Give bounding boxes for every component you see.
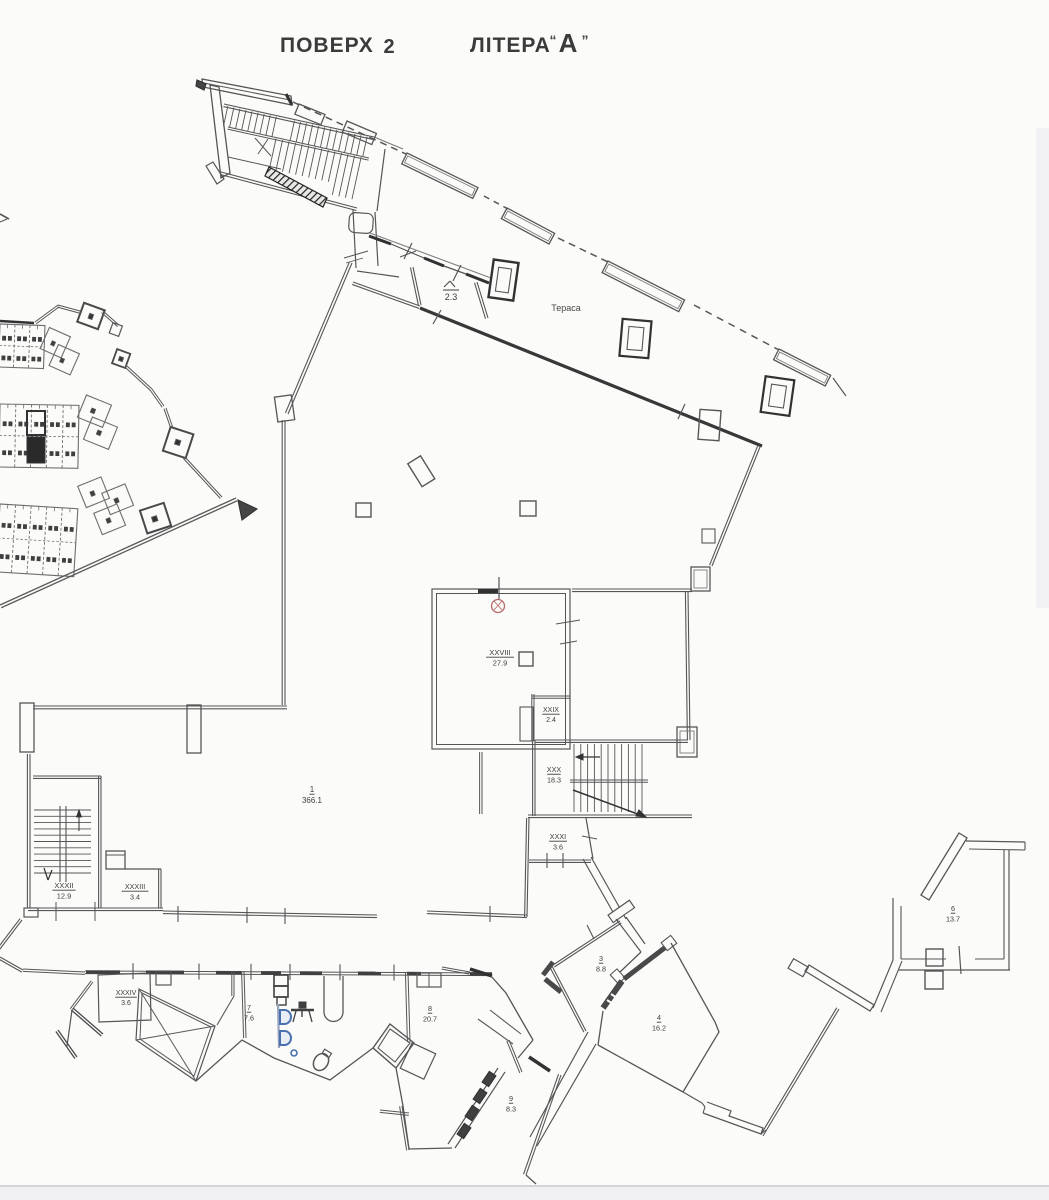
svg-text:9: 9 bbox=[509, 1094, 513, 1103]
svg-text:8: 8 bbox=[428, 1004, 432, 1013]
svg-text:3.6: 3.6 bbox=[121, 1000, 131, 1007]
svg-text:8.8: 8.8 bbox=[596, 964, 606, 973]
svg-text:”: ” bbox=[582, 32, 589, 48]
svg-text:ПОВЕРХ: ПОВЕРХ bbox=[280, 34, 374, 57]
svg-text:12.9: 12.9 bbox=[57, 892, 72, 901]
svg-text:3.6: 3.6 bbox=[553, 842, 563, 851]
svg-text:4: 4 bbox=[657, 1013, 661, 1022]
svg-text:8.3: 8.3 bbox=[506, 1104, 516, 1113]
svg-text:16.2: 16.2 bbox=[652, 1023, 666, 1032]
svg-text:XXIX: XXIX bbox=[543, 707, 559, 714]
svg-text:6: 6 bbox=[951, 904, 955, 913]
svg-text:XXXIV: XXXIV bbox=[116, 990, 137, 997]
svg-text:2: 2 bbox=[383, 36, 394, 58]
svg-text:XXXII: XXXII bbox=[54, 881, 73, 890]
svg-text:18.3: 18.3 bbox=[547, 775, 561, 784]
svg-text:7.6: 7.6 bbox=[244, 1013, 254, 1022]
svg-text:XXX: XXX bbox=[547, 765, 562, 774]
svg-text:XXVIII: XXVIII bbox=[489, 648, 510, 657]
svg-text:Тераса: Тераса bbox=[551, 303, 581, 313]
svg-text:XXXIII: XXXIII bbox=[125, 882, 145, 891]
svg-text:2.3: 2.3 bbox=[445, 292, 458, 302]
svg-text:“: “ bbox=[550, 32, 557, 48]
svg-text:А: А bbox=[559, 28, 578, 58]
svg-text:13.7: 13.7 bbox=[946, 914, 960, 923]
svg-text:366.1: 366.1 bbox=[302, 796, 323, 805]
svg-text:20.7: 20.7 bbox=[423, 1014, 437, 1023]
svg-text:2.4: 2.4 bbox=[546, 717, 556, 724]
svg-text:ЛІТЕРА: ЛІТЕРА bbox=[470, 34, 551, 57]
svg-text:1: 1 bbox=[310, 785, 315, 794]
svg-text:7: 7 bbox=[247, 1003, 251, 1012]
svg-text:3: 3 bbox=[599, 954, 603, 963]
svg-text:XXXI: XXXI bbox=[550, 832, 566, 841]
svg-text:3.4: 3.4 bbox=[130, 892, 140, 901]
svg-text:27.9: 27.9 bbox=[493, 659, 508, 668]
